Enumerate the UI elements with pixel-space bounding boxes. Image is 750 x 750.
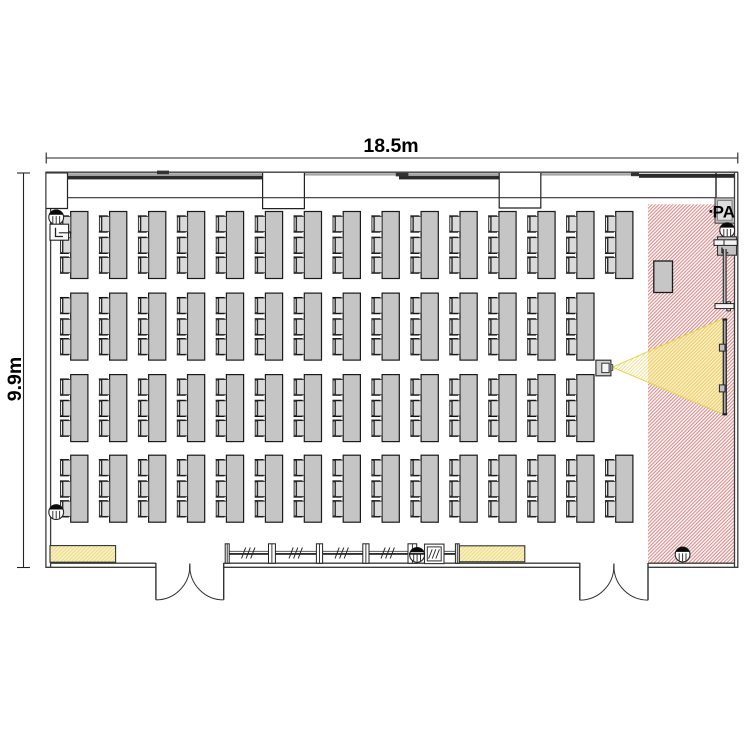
svg-text:18.5m: 18.5m (363, 135, 418, 157)
svg-text:PA: PA (713, 203, 735, 222)
svg-text:9.9m: 9.9m (4, 357, 26, 401)
